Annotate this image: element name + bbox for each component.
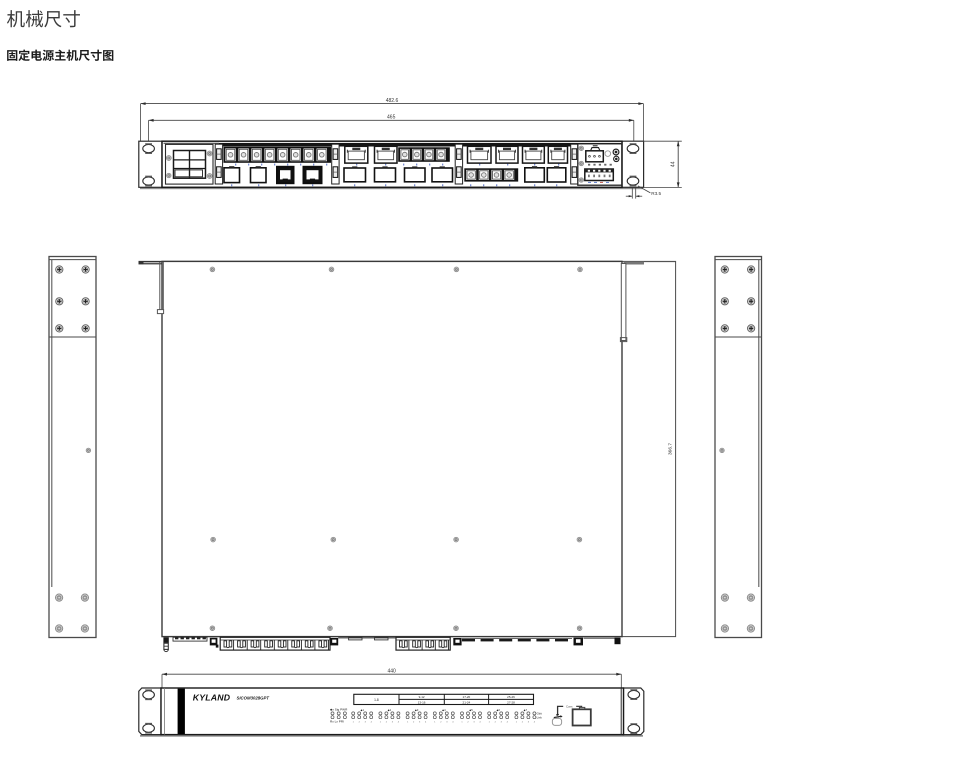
svg-text:21-24: 21-24 — [463, 700, 471, 704]
svg-text:R3.5: R3.5 — [651, 191, 661, 196]
svg-text:27-28: 27-28 — [507, 700, 515, 704]
svg-text:Link: Link — [537, 715, 543, 719]
svg-text:◆1: ◆1 — [360, 708, 364, 712]
svg-text:◆2: ◆2 — [388, 708, 392, 712]
svg-text:Rx Lx PRI: Rx Lx PRI — [330, 720, 344, 724]
svg-text:SICOM3028GPT: SICOM3028GPT — [237, 695, 270, 700]
svg-text:440: 440 — [387, 669, 396, 675]
svg-text:◆x Sig PWR: ◆x Sig PWR — [330, 708, 348, 712]
svg-text:366.7: 366.7 — [668, 443, 674, 455]
svg-text:◆6: ◆6 — [496, 708, 500, 712]
svg-text:13-16: 13-16 — [418, 700, 426, 704]
svg-text:465: 465 — [387, 115, 396, 121]
svg-text:1-8: 1-8 — [374, 698, 379, 702]
svg-text:KYLAND: KYLAND — [193, 693, 231, 703]
svg-text:9-12: 9-12 — [419, 695, 425, 699]
svg-text:482.6: 482.6 — [386, 98, 399, 104]
svg-text:◆7: ◆7 — [524, 708, 528, 712]
svg-text:◆5: ◆5 — [469, 708, 473, 712]
svg-text:Cons: Cons — [566, 705, 573, 709]
svg-text:17-20: 17-20 — [463, 695, 471, 699]
svg-text:◆4: ◆4 — [442, 708, 446, 712]
svg-text:◆3: ◆3 — [415, 708, 419, 712]
svg-text:44: 44 — [671, 161, 677, 167]
svg-text:25-26: 25-26 — [507, 695, 515, 699]
